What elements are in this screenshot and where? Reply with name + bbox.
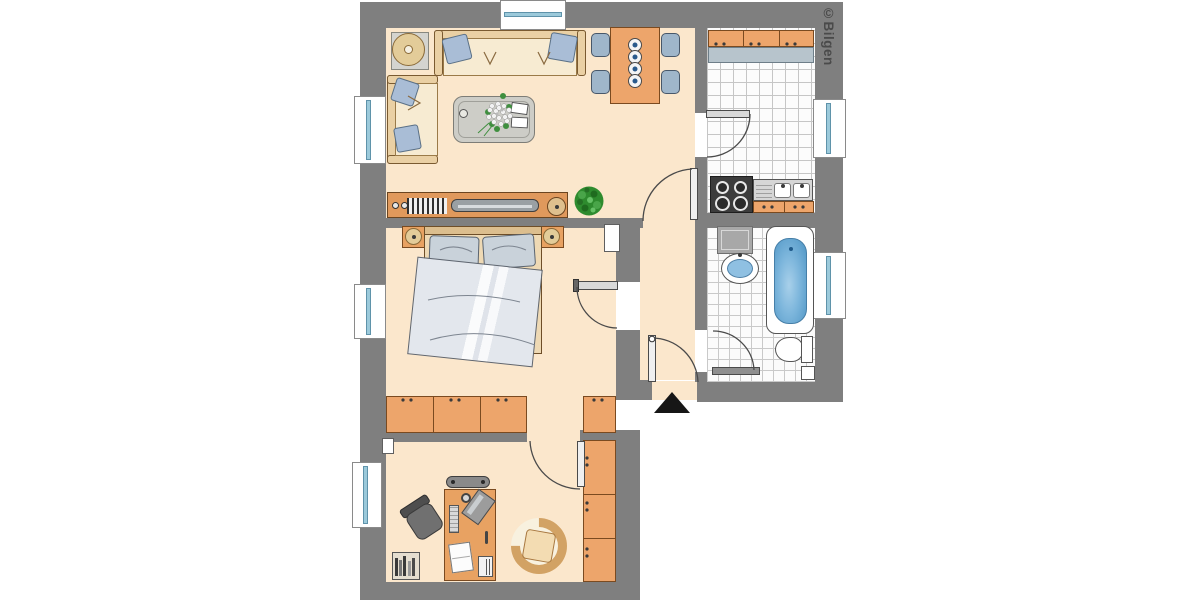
- entrance-door-leaf: [648, 335, 656, 382]
- lamp-center: [404, 45, 413, 54]
- wall-hall-bottom: [616, 380, 652, 400]
- toilet-tank: [801, 336, 813, 363]
- tub-chair-cushion: [522, 529, 557, 564]
- wash-basin: [721, 253, 759, 284]
- bookshelf: [392, 552, 420, 580]
- round-speaker: [547, 197, 566, 216]
- paper-fold-line: [452, 556, 470, 559]
- table-lamp: [543, 228, 560, 245]
- cabinet-divider: [743, 31, 744, 46]
- wall-bath-door-stub: [695, 372, 707, 382]
- office-wardrobe-column: [583, 440, 616, 582]
- floor-plan-canvas: ©Bilgen: [0, 0, 1200, 600]
- wall-office-right: [616, 430, 640, 582]
- office-wall-niche: [382, 438, 394, 454]
- window-top-living: [500, 0, 566, 30]
- basin-bowl: [727, 259, 753, 278]
- speaker-cone: [555, 205, 559, 209]
- table-lamp: [405, 228, 422, 245]
- dining-table: [610, 27, 660, 104]
- bed-blanket: [407, 257, 543, 368]
- window-left-living: [354, 96, 386, 164]
- floor-lamp: [392, 33, 425, 66]
- kitchen-stove: [710, 176, 753, 213]
- window-glass: [826, 103, 831, 154]
- window-right-kitchen: [813, 99, 846, 158]
- hall-door-leaf: [690, 168, 698, 220]
- basin-faucet: [738, 253, 742, 257]
- tv: [451, 199, 539, 212]
- book: [511, 117, 529, 129]
- wardrobe-divider: [584, 494, 615, 495]
- shelf-screw: [451, 480, 455, 484]
- faucet: [781, 184, 785, 188]
- window-right-bathroom: [813, 252, 846, 319]
- sideboard: [387, 192, 568, 218]
- kitchen-wall-cabinets: [708, 30, 814, 47]
- wall-bedroom-hall-lower: [616, 330, 640, 380]
- stove-burner: [716, 181, 729, 194]
- toilet: [775, 337, 803, 362]
- tv-screen-line: [458, 205, 532, 208]
- printer-slot: [486, 559, 487, 575]
- stove-burner: [715, 196, 730, 211]
- dining-chair: [591, 33, 610, 57]
- book: [510, 102, 528, 115]
- shelf-screw: [481, 480, 485, 484]
- window-glass: [366, 288, 371, 335]
- faucet: [800, 184, 804, 188]
- lamp-dot: [412, 235, 416, 239]
- copyright-watermark: ©Bilgen: [821, 6, 836, 66]
- dining-chair: [661, 33, 680, 57]
- dining-chair: [661, 70, 680, 94]
- wall-shelf: [446, 476, 490, 488]
- lamp-dot: [550, 235, 554, 239]
- pen: [485, 531, 488, 544]
- wardrobe-divider: [480, 397, 481, 432]
- window-glass: [826, 256, 831, 315]
- window-glass: [366, 100, 371, 160]
- stove-burner: [733, 196, 748, 211]
- sofa-armrest: [387, 155, 438, 164]
- wall-bathroom-bottom: [697, 382, 843, 402]
- kitchen-countertop: [708, 47, 814, 63]
- tub-chair: [511, 518, 567, 574]
- bathroom-door-leaf: [712, 367, 760, 375]
- wardrobe-divider: [433, 397, 434, 432]
- washing-machine: [717, 226, 753, 254]
- cd-rack: [407, 198, 447, 214]
- candle: [459, 109, 468, 118]
- cabinet-divider: [779, 31, 780, 46]
- dining-chair: [591, 70, 610, 94]
- sofa-pillow: [547, 32, 578, 63]
- bedroom-door-leaf: [576, 281, 618, 290]
- hallway-floor: [643, 218, 695, 228]
- window-left-office: [352, 462, 382, 528]
- papers: [448, 542, 474, 574]
- cabinet-divider: [784, 202, 785, 212]
- wall-top: [360, 2, 843, 28]
- bathtub: [766, 226, 814, 334]
- window-left-bedroom: [354, 284, 386, 339]
- sofa-pillow: [393, 124, 422, 153]
- wardrobe-divider: [584, 538, 615, 539]
- kitchen-door-leaf: [706, 110, 750, 118]
- kitchen-base-cabinet: [753, 201, 814, 213]
- speaker-knob: [392, 202, 399, 209]
- keyboard: [449, 505, 459, 533]
- bathroom-shelf: [801, 366, 815, 380]
- kitchen-sink-unit: [753, 179, 813, 201]
- bedroom-door-handle: [573, 279, 579, 292]
- bathtub-drain: [789, 247, 793, 251]
- bedroom-wardrobe-single: [583, 396, 616, 433]
- window-glass: [504, 12, 562, 17]
- sofa-armrest: [434, 30, 443, 76]
- window-glass: [363, 466, 368, 524]
- bedroom-office-passage-floor: [527, 430, 580, 442]
- wall-bottom: [360, 582, 640, 600]
- bedroom-wall-niche: [604, 224, 620, 252]
- washing-machine-lid: [721, 230, 749, 250]
- printer-slot: [489, 559, 490, 575]
- wall-kitchen-hall-upper: [695, 28, 707, 113]
- stove-burner: [734, 181, 747, 194]
- entrance-threshold: [652, 381, 697, 400]
- office-door-leaf: [577, 441, 585, 487]
- sofa-armrest: [577, 30, 586, 76]
- drainboard: [756, 183, 772, 198]
- printer: [478, 556, 493, 577]
- bedroom-wardrobe-row: [386, 396, 527, 433]
